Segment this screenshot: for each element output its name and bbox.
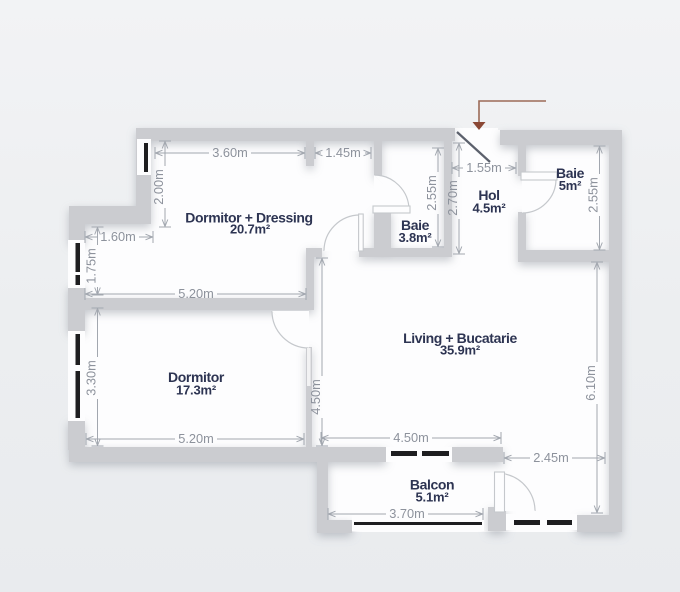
svg-text:3.30m: 3.30m	[83, 360, 98, 396]
svg-text:5.20m: 5.20m	[178, 431, 214, 446]
svg-text:20.7m²: 20.7m²	[230, 222, 271, 237]
svg-text:2.70m: 2.70m	[445, 180, 460, 216]
svg-text:1.55m: 1.55m	[466, 160, 502, 175]
svg-text:1.75m: 1.75m	[83, 248, 98, 284]
svg-text:4.50m: 4.50m	[308, 379, 323, 415]
svg-text:3.60m: 3.60m	[212, 145, 248, 160]
svg-text:4.5m²: 4.5m²	[473, 201, 507, 216]
svg-text:4.50m: 4.50m	[393, 430, 429, 445]
svg-text:35.9m²: 35.9m²	[440, 343, 481, 358]
svg-text:1.60m: 1.60m	[100, 229, 136, 244]
svg-text:5m²: 5m²	[559, 178, 582, 193]
svg-text:6.10m: 6.10m	[583, 365, 598, 401]
svg-text:5.20m: 5.20m	[178, 286, 214, 301]
svg-text:2.55m: 2.55m	[585, 177, 600, 213]
svg-text:5.1m²: 5.1m²	[416, 490, 450, 505]
svg-text:3.8m²: 3.8m²	[399, 230, 433, 245]
svg-text:1.45m: 1.45m	[325, 145, 361, 160]
svg-text:2.55m: 2.55m	[424, 175, 439, 211]
svg-text:2.00m: 2.00m	[151, 169, 166, 205]
svg-text:2.45m: 2.45m	[533, 450, 569, 465]
svg-text:3.70m: 3.70m	[389, 506, 425, 521]
svg-text:17.3m²: 17.3m²	[176, 383, 217, 398]
